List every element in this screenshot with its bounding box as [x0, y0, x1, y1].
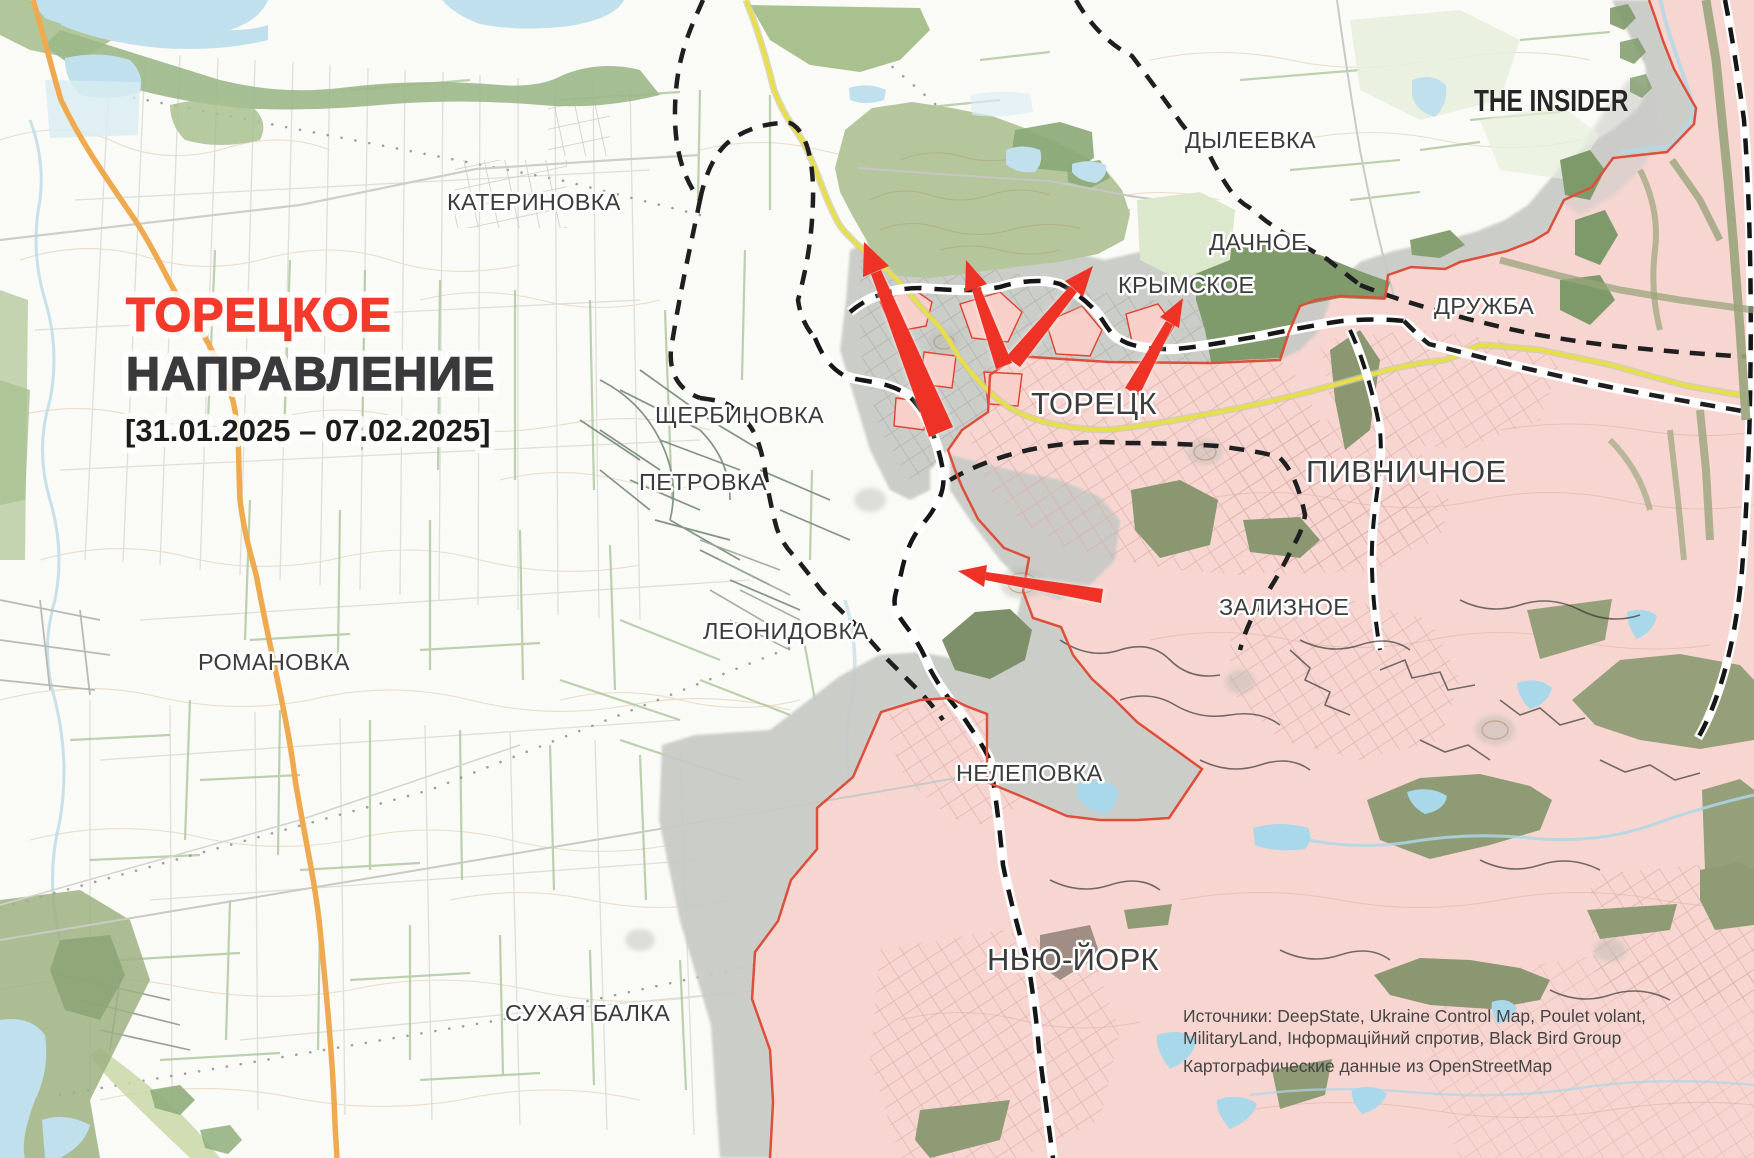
svg-text:ТОРЕЦК: ТОРЕЦК	[1031, 386, 1157, 421]
svg-text:КАТЕРИНОВКА: КАТЕРИНОВКА	[447, 189, 621, 215]
svg-text:ДРУЖБА: ДРУЖБА	[1434, 293, 1534, 319]
svg-text:НЕЛЕПОВКА: НЕЛЕПОВКА	[956, 760, 1103, 786]
svg-text:MilitaryLand, Інформаційний сп: MilitaryLand, Інформаційний спротив, Bla…	[1183, 1028, 1621, 1048]
svg-text:КРЫМСКОЕ: КРЫМСКОЕ	[1118, 272, 1255, 298]
svg-text:ДАЧНОЕ: ДАЧНОЕ	[1209, 229, 1307, 255]
svg-text:ЗАЛИЗНОЕ: ЗАЛИЗНОЕ	[1219, 594, 1349, 620]
svg-text:ПЕТРОВКА: ПЕТРОВКА	[639, 469, 767, 495]
svg-text:НАПРАВЛЕНИЕ: НАПРАВЛЕНИЕ	[126, 347, 495, 400]
svg-text:Картографические данные из Ope: Картографические данные из OpenStreetMap	[1183, 1056, 1552, 1076]
svg-text:СУХАЯ БАЛКА: СУХАЯ БАЛКА	[505, 1000, 670, 1026]
svg-text:ПИВНИЧНОЕ: ПИВНИЧНОЕ	[1306, 454, 1506, 489]
svg-text:ЛЕОНИДОВКА: ЛЕОНИДОВКА	[703, 618, 868, 644]
svg-text:НЬЮ-ЙОРК: НЬЮ-ЙОРК	[987, 941, 1159, 977]
svg-text:[31.01.2025 – 07.02.2025]: [31.01.2025 – 07.02.2025]	[125, 413, 490, 448]
svg-text:THE INSIDER: THE INSIDER	[1474, 83, 1629, 117]
svg-text:ДЫЛЕЕВКА: ДЫЛЕЕВКА	[1185, 127, 1316, 153]
svg-text:ТОРЕЦКОЕ: ТОРЕЦКОЕ	[126, 288, 392, 341]
svg-text:Источники: DeepState, Ukraine: Источники: DeepState, Ukraine Control Ma…	[1183, 1006, 1646, 1026]
svg-text:ЩЕРБИНОВКА: ЩЕРБИНОВКА	[655, 402, 824, 428]
svg-text:РОМАНОВКА: РОМАНОВКА	[198, 649, 350, 675]
